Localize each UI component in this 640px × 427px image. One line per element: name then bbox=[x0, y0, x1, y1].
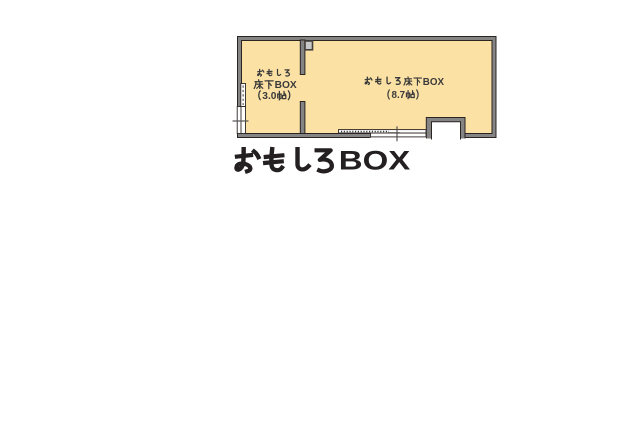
svg-text:BOX: BOX bbox=[423, 77, 445, 88]
svg-text:BOX: BOX bbox=[275, 80, 297, 91]
svg-text:BOX: BOX bbox=[339, 146, 411, 176]
svg-text:3.0: 3.0 bbox=[262, 91, 276, 102]
svg-text:8.7: 8.7 bbox=[392, 90, 406, 101]
